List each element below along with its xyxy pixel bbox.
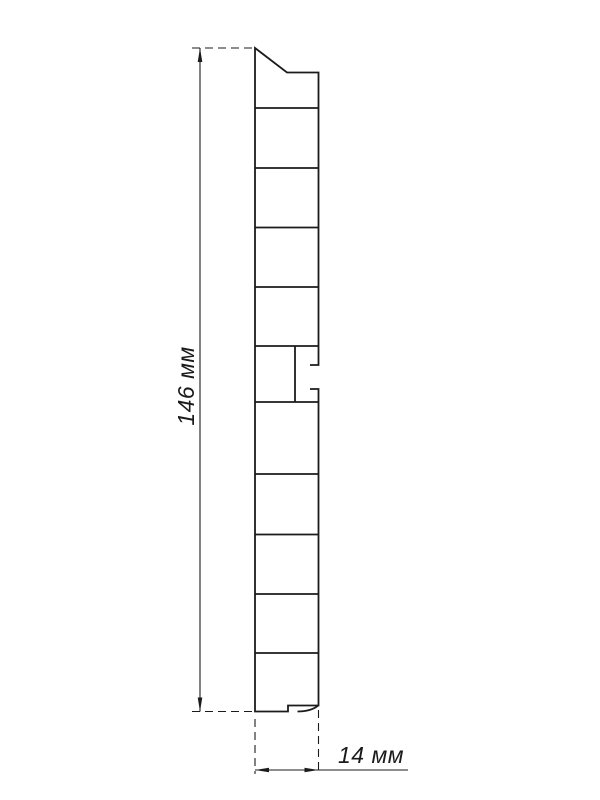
height-arrow-bottom <box>198 698 203 712</box>
drawing-canvas: 146 мм 14 мм <box>0 0 600 800</box>
width-dimension-label: 14 мм <box>338 742 404 768</box>
lamella-joint-lines <box>255 108 319 653</box>
dimension-arrows <box>198 48 319 772</box>
width-arrow-right <box>305 768 319 773</box>
height-arrow-top <box>198 48 203 62</box>
width-arrow-left <box>255 768 269 773</box>
profile-group <box>255 48 319 712</box>
profile-technical-drawing: 146 мм 14 мм <box>0 0 600 800</box>
bottom-relief-arc <box>298 706 318 712</box>
height-dimension-label: 146 мм <box>173 346 199 425</box>
dimension-group <box>192 48 408 774</box>
profile-outline <box>255 48 319 712</box>
